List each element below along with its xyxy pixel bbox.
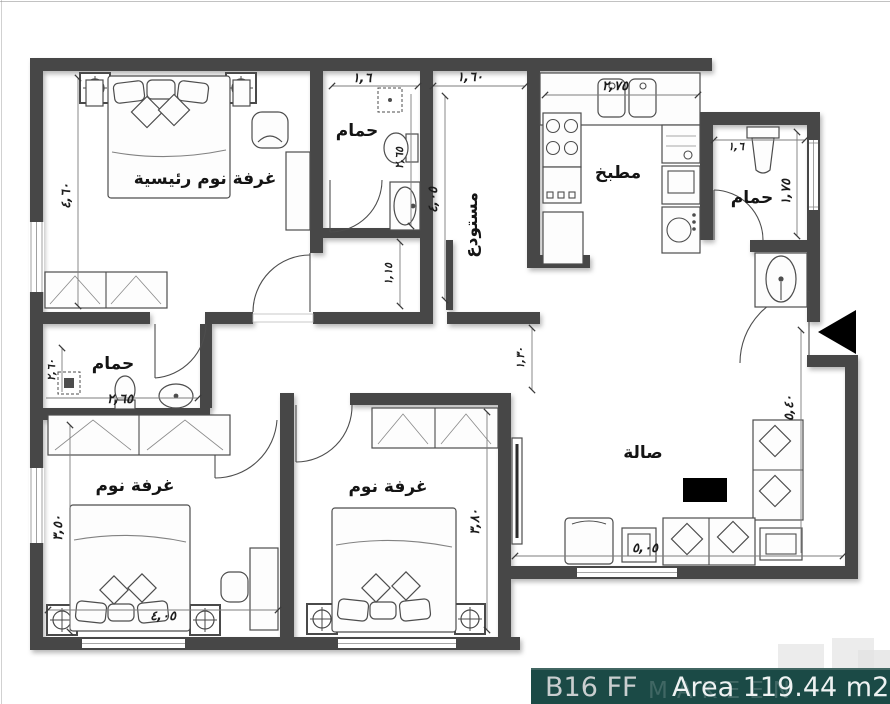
dim-bathleft-depth: ٢,٦٠ — [45, 359, 58, 381]
label-kitchen: مطبخ — [595, 163, 641, 183]
wall-bathright-left — [700, 125, 713, 240]
base-cabinet — [543, 212, 583, 264]
door-bath-left — [155, 324, 206, 378]
wall-bathright-bottom — [750, 240, 807, 252]
wall-kitchen-left — [527, 71, 540, 261]
furniture-bath-right — [747, 127, 807, 307]
window-bedmid-bottom — [338, 639, 456, 648]
toilet — [747, 127, 779, 173]
dim-hall-front-bath: ١,١٥ — [382, 262, 395, 285]
wall-bathright-top — [700, 112, 820, 125]
wall-left — [30, 58, 43, 650]
label-master-bedroom: غرفة نوم رئيسية — [134, 169, 277, 189]
dim-bathtop-depth: ٢,٦٥ — [393, 146, 406, 169]
nightstand — [86, 80, 103, 106]
wall-entrance-stub — [807, 355, 858, 367]
label-storage: مستودع — [462, 192, 482, 258]
wall-bedroom-divider — [280, 393, 294, 650]
wall-top — [30, 58, 712, 71]
wardrobe — [48, 415, 230, 455]
dim-bedleft-width: ٤,٠٥ — [150, 609, 177, 624]
washer — [662, 207, 700, 253]
title-bar: MAKEEN B16 FF Area 119.44 m2 — [531, 668, 890, 704]
label-bath-top: حمام — [336, 121, 379, 141]
armchair — [565, 518, 613, 564]
nightstand — [233, 80, 250, 106]
dim-bathright-depth: ١,٧٥ — [779, 178, 794, 205]
wall-bedmid-top — [350, 393, 498, 405]
sink-bowl — [629, 79, 656, 117]
watermark-shapes — [778, 638, 890, 668]
dim-bedleft-height: ٣,٥٠ — [51, 515, 66, 541]
label-bath-left: حمام — [92, 354, 135, 374]
dim-hall-living: ١,٣٠ — [514, 347, 527, 369]
door-bath-top — [330, 180, 382, 232]
dim-bathtop-width: ١,٦ — [353, 71, 373, 86]
label-living: صالة — [623, 443, 663, 463]
wall-bathleft-right — [200, 324, 212, 408]
washbasin — [755, 253, 807, 307]
door-bedroom-mid — [296, 405, 352, 462]
table-black — [683, 478, 727, 502]
stove — [543, 113, 581, 203]
wall-bathtop-bottom-a — [323, 228, 385, 238]
window-bedleft-bottom — [82, 639, 185, 648]
sofa-right — [753, 420, 803, 560]
entrance-arrow-icon — [818, 310, 856, 354]
dim-storage-depth: ٤,٠٥ — [426, 186, 441, 213]
tv-unit — [512, 438, 522, 544]
furniture-master-bedroom — [45, 76, 310, 308]
dim-bathright-width: ١,٦ — [728, 140, 745, 153]
wall-master-right — [310, 71, 323, 253]
dim-master-height: ٤,٦٠ — [59, 183, 74, 209]
armchair — [252, 112, 288, 148]
window-bedroom-left — [29, 468, 44, 543]
furniture-bedroom-left — [48, 415, 278, 631]
wardrobe — [45, 272, 167, 308]
dim-storage-width: ١,٦٠ — [457, 70, 483, 85]
dim-kitchen-width: ٢,٧٥ — [602, 79, 629, 94]
window-master — [29, 222, 44, 292]
washbasin — [159, 384, 193, 408]
dim-living-height: ٥,٤٠ — [782, 395, 797, 421]
label-bedroom-mid: غرفة نوم — [348, 477, 427, 497]
washbasin — [390, 182, 420, 230]
wall-corridor-d — [447, 312, 540, 324]
wardrobe — [372, 408, 498, 448]
sofa-bottom — [565, 518, 755, 565]
window-living-bottom — [577, 568, 677, 577]
wall-right-lower — [845, 360, 858, 579]
wall-bottom-living — [508, 566, 858, 579]
wall-corridor-a — [43, 312, 150, 324]
desk-chair — [221, 548, 278, 630]
wall-corridor-b — [205, 312, 253, 324]
door-master — [253, 253, 313, 322]
floorplan-page: غرفة نوم رئيسية حمام مستودع مطبخ حمام حم… — [0, 0, 890, 704]
wall-living-left — [498, 393, 511, 650]
window-bathright — [809, 140, 818, 210]
tall-units — [662, 125, 700, 253]
dim-bathleft-width: ٢,٦٥ — [107, 392, 134, 407]
dim-bedmid-height: ٣,٨٠ — [468, 509, 483, 535]
unit-area: Area 119.44 m2 — [672, 672, 889, 703]
storage-door-leaf — [446, 240, 453, 310]
floorplan-drawing: غرفة نوم رئيسية حمام مستودع مطبخ حمام حم… — [0, 0, 890, 704]
wall-corridor-c — [313, 312, 433, 324]
desk — [286, 152, 310, 230]
label-bedroom-left: غرفة نوم — [95, 476, 174, 496]
dim-living-width: ٥,٠٥ — [632, 541, 659, 556]
unit-code: B16 FF — [545, 672, 638, 703]
label-bath-right: حمام — [731, 188, 774, 208]
